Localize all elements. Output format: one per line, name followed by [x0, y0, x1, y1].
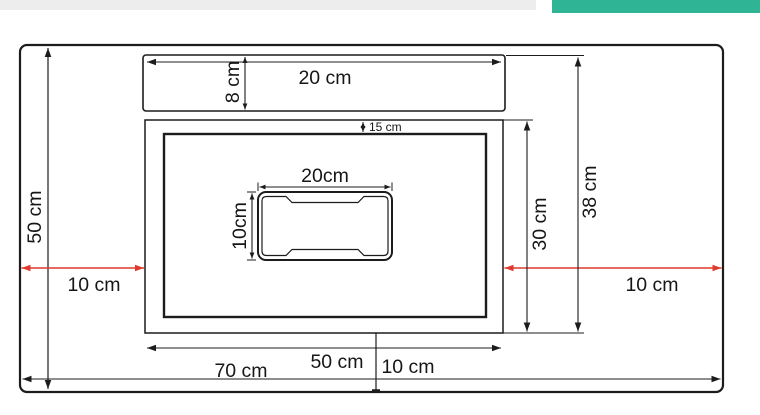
label-right-gap: 10 cm [625, 274, 678, 296]
label-bottom-total-width: 70 cm [214, 360, 267, 382]
label-basin-height: 10cm [229, 202, 251, 250]
label-bottom-right-width: 10 cm [381, 356, 434, 378]
dimension-drawing: 50 cm 20 cm 8 cm 15 cm 20cm 10cm 10 cm 1… [0, 0, 760, 415]
inner-rectangle [164, 134, 486, 317]
label-bottom-left-width: 50 cm [310, 351, 363, 373]
label-top-inset: 15 cm [369, 120, 402, 134]
outer-rectangle [20, 45, 723, 392]
label-strip-height: 8 cm [222, 61, 244, 103]
label-left-gap: 10 cm [67, 274, 120, 296]
label-left-height: 50 cm [24, 190, 46, 243]
middle-rectangle [145, 120, 503, 333]
label-overall-inner-height: 38 cm [579, 165, 601, 218]
basin-inner-ledge [262, 197, 388, 256]
label-inner-height: 30 cm [529, 197, 551, 250]
label-strip-width: 20 cm [298, 67, 351, 89]
label-basin-width: 20cm [301, 165, 349, 187]
